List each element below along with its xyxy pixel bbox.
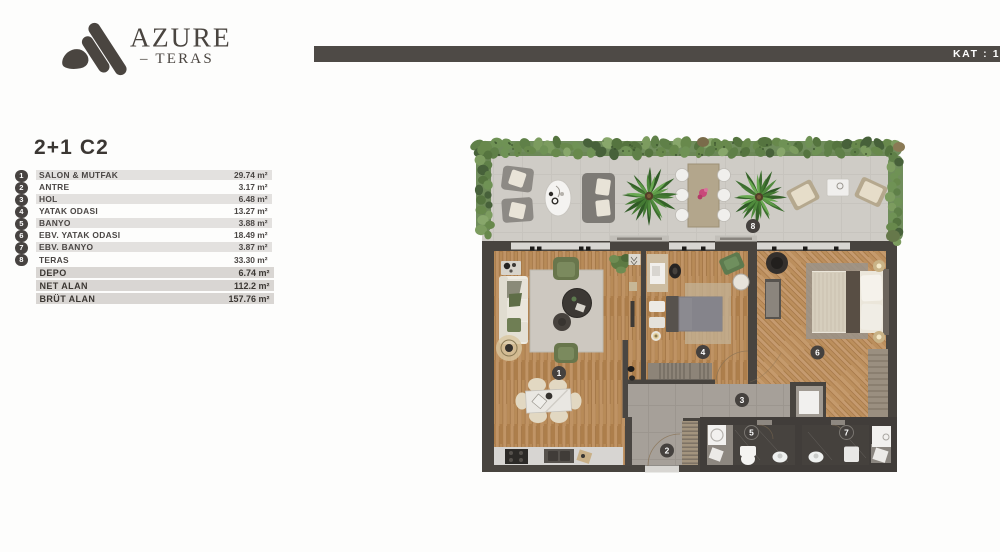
svg-text:5: 5 <box>749 428 754 438</box>
svg-text:AZURE: AZURE <box>130 22 232 53</box>
svg-text:1: 1 <box>557 368 562 378</box>
svg-text:– TERAS: – TERAS <box>139 51 214 67</box>
svg-text:6: 6 <box>815 348 820 358</box>
svg-text:3: 3 <box>740 395 745 405</box>
svg-text:7: 7 <box>844 428 849 438</box>
svg-text:4: 4 <box>701 347 706 357</box>
svg-text:8: 8 <box>751 221 756 231</box>
svg-text:2: 2 <box>665 446 670 456</box>
